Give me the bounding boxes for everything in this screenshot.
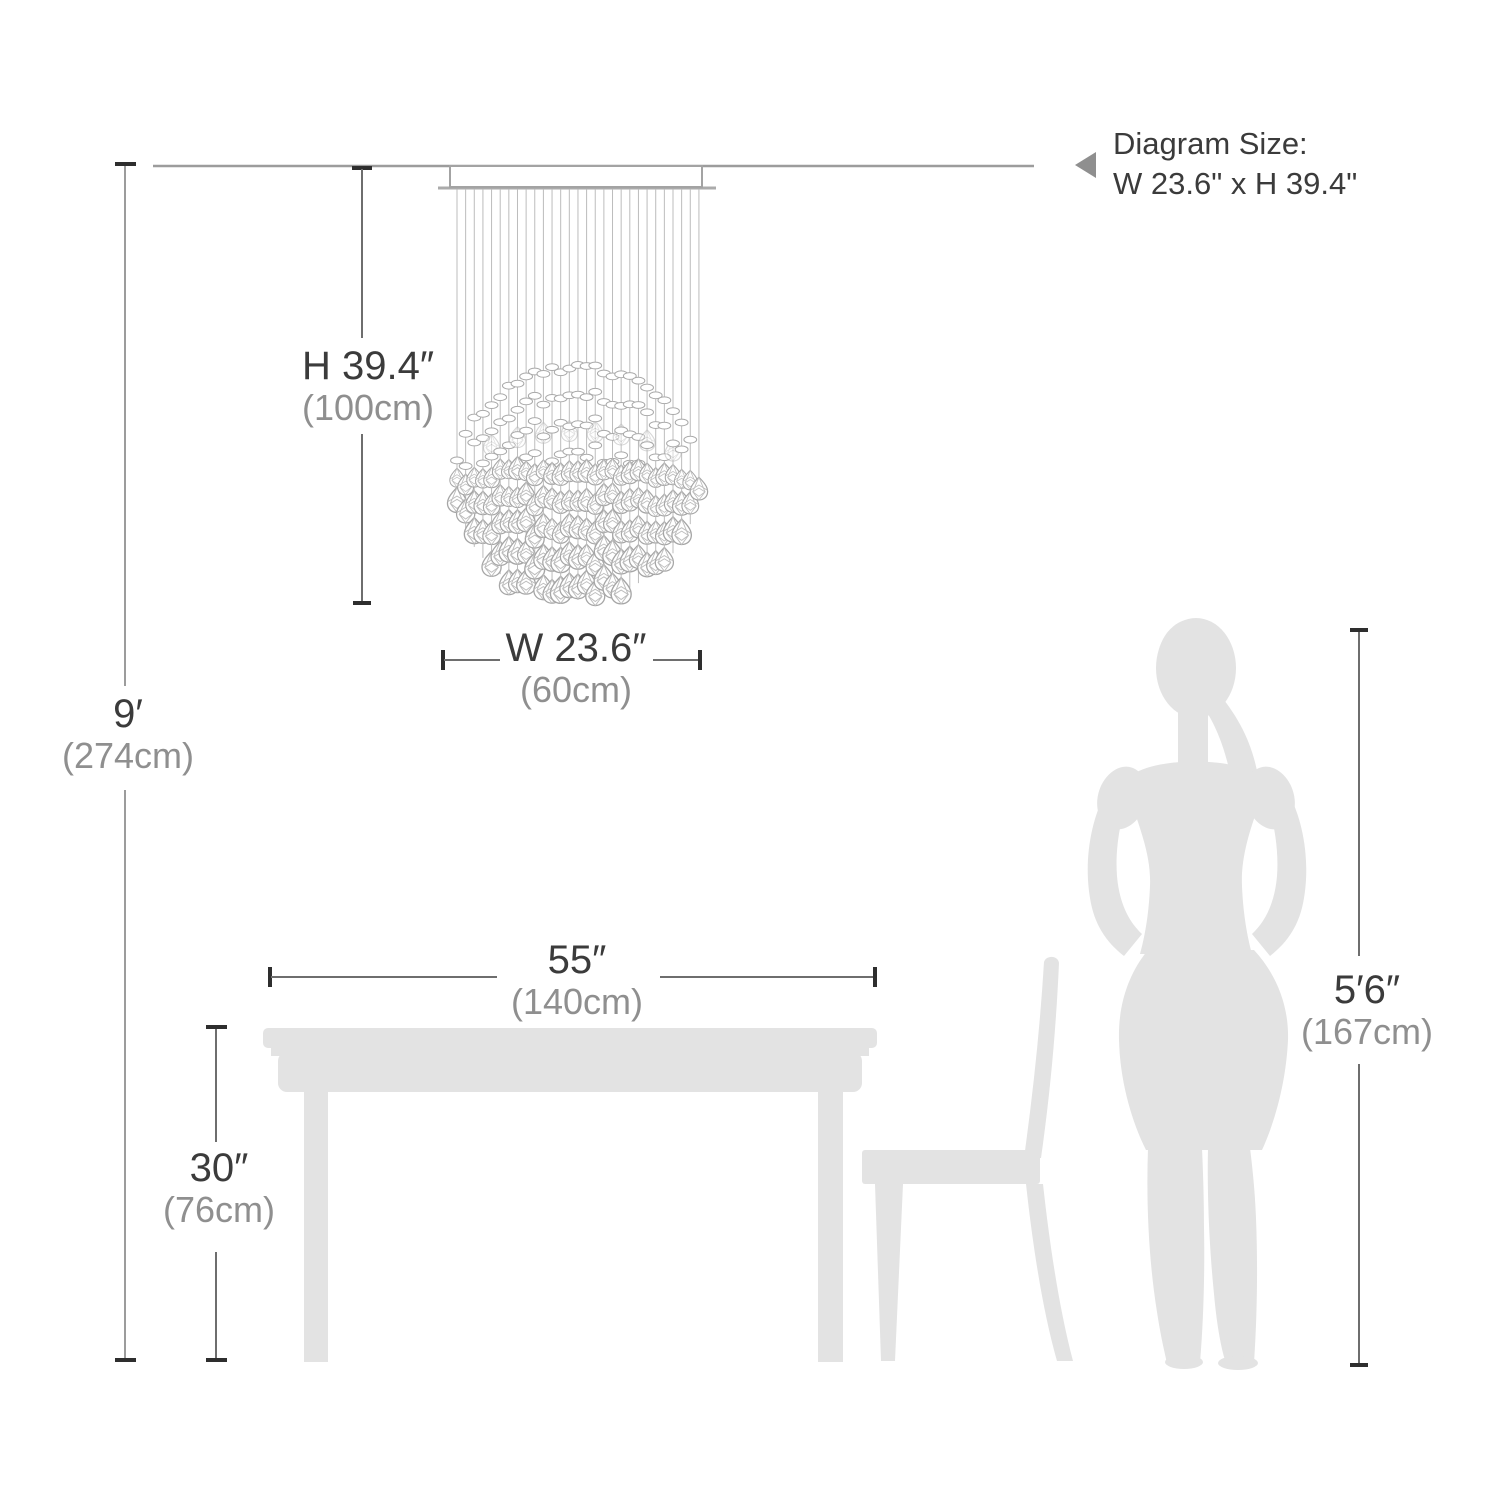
table-width-label: 55″ (140cm) — [511, 938, 643, 1022]
person-height-metric: (167cm) — [1301, 1012, 1433, 1052]
fixture-width-imperial: W 23.6″ — [506, 626, 647, 670]
ceiling-height-metric: (274cm) — [62, 736, 194, 776]
fixture-height-imperial: H 39.4″ — [302, 344, 434, 388]
diagram-graphics — [0, 0, 1500, 1500]
person-silhouette — [1088, 618, 1307, 1370]
person-height-label: 5′6″ (167cm) — [1301, 968, 1433, 1052]
fixture-width-label: W 23.6″ (60cm) — [506, 626, 647, 710]
table-height-imperial: 30″ — [190, 1146, 249, 1190]
note-arrow-icon — [1075, 152, 1096, 178]
diagram-size-note-line1: Diagram Size: — [1113, 124, 1357, 164]
fixture-width-metric: (60cm) — [506, 670, 647, 710]
table-width-imperial: 55″ — [548, 938, 607, 982]
fixture-height-label: H 39.4″ (100cm) — [302, 344, 434, 428]
person-height-imperial: 5′6″ — [1334, 968, 1400, 1012]
diagram-size-note-line2: W 23.6" x H 39.4" — [1113, 164, 1357, 204]
chair-silhouette — [862, 957, 1073, 1361]
ceiling-height-imperial: 9′ — [113, 692, 143, 736]
table-width-metric: (140cm) — [511, 982, 643, 1022]
table-height-metric: (76cm) — [163, 1190, 275, 1230]
diagram-size-note: Diagram Size: W 23.6" x H 39.4" — [1113, 124, 1357, 203]
dimension-diagram: H 39.4″ (100cm) W 23.6″ (60cm) 9′ (274cm… — [0, 0, 1500, 1500]
dining-table-silhouette — [263, 1028, 877, 1362]
chandelier — [438, 166, 716, 606]
table-height-label: 30″ (76cm) — [163, 1146, 275, 1230]
fixture-height-metric: (100cm) — [302, 388, 434, 428]
ceiling-height-label: 9′ (274cm) — [62, 692, 194, 776]
chandelier-strings-and-crystals — [447, 189, 707, 606]
chandelier-canopy — [450, 166, 702, 187]
